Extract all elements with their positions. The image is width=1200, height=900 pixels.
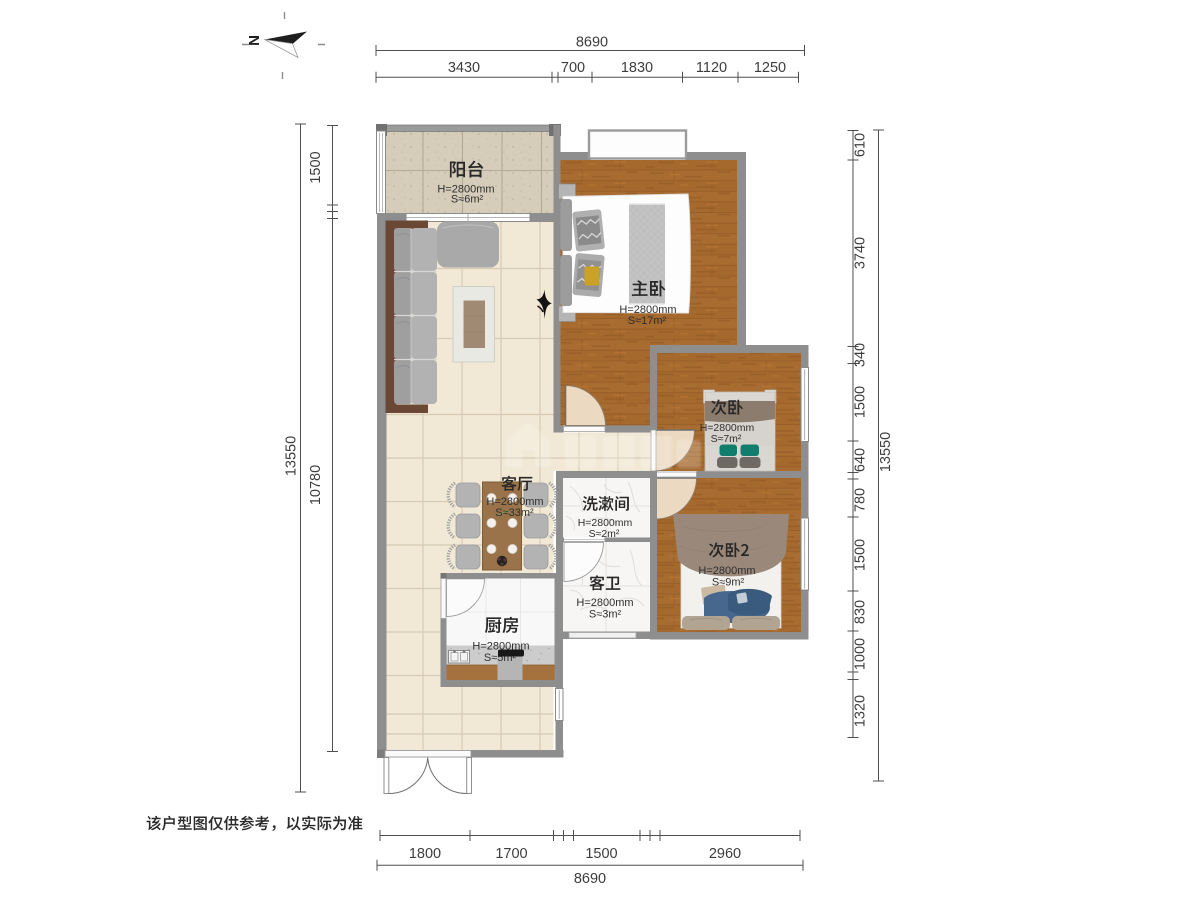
svg-text:640: 640	[853, 448, 869, 472]
svg-text:340: 340	[853, 343, 869, 367]
svg-text:8690: 8690	[576, 35, 608, 51]
svg-text:830: 830	[853, 600, 869, 624]
svg-text:8690: 8690	[574, 871, 606, 887]
svg-text:H=2800mm: H=2800mm	[698, 565, 755, 577]
svg-text:610: 610	[853, 133, 869, 157]
svg-text:H=2800mm: H=2800mm	[576, 597, 633, 609]
svg-text:1320: 1320	[853, 695, 869, 727]
svg-text:S≈33m²: S≈33m²	[495, 507, 534, 519]
svg-text:3740: 3740	[853, 237, 869, 269]
svg-text:S≈3m²: S≈3m²	[589, 609, 622, 621]
svg-text:13550: 13550	[284, 436, 300, 476]
svg-text:1500: 1500	[585, 846, 617, 862]
svg-text:2960: 2960	[709, 846, 741, 862]
svg-text:700: 700	[561, 60, 585, 76]
svg-text:1500: 1500	[853, 386, 869, 418]
svg-text:1000: 1000	[853, 638, 869, 670]
svg-text:1700: 1700	[495, 846, 527, 862]
svg-text:1500: 1500	[853, 539, 869, 571]
svg-text:S≈17m²: S≈17m²	[628, 315, 667, 327]
svg-text:1830: 1830	[621, 60, 653, 76]
svg-text:S≈6m²: S≈6m²	[451, 194, 484, 206]
svg-text:3430: 3430	[448, 60, 480, 76]
svg-text:1800: 1800	[409, 846, 441, 862]
svg-text:S≈7m²: S≈7m²	[711, 433, 742, 445]
svg-text:S≈2m²: S≈2m²	[589, 528, 620, 540]
svg-text:1500: 1500	[308, 151, 324, 183]
svg-text:S≈9m²: S≈9m²	[712, 577, 745, 589]
svg-text:10780: 10780	[308, 465, 324, 505]
svg-text:780: 780	[853, 488, 869, 512]
svg-text:1120: 1120	[696, 60, 727, 76]
svg-text:13550: 13550	[878, 432, 894, 472]
svg-text:1250: 1250	[754, 60, 786, 76]
